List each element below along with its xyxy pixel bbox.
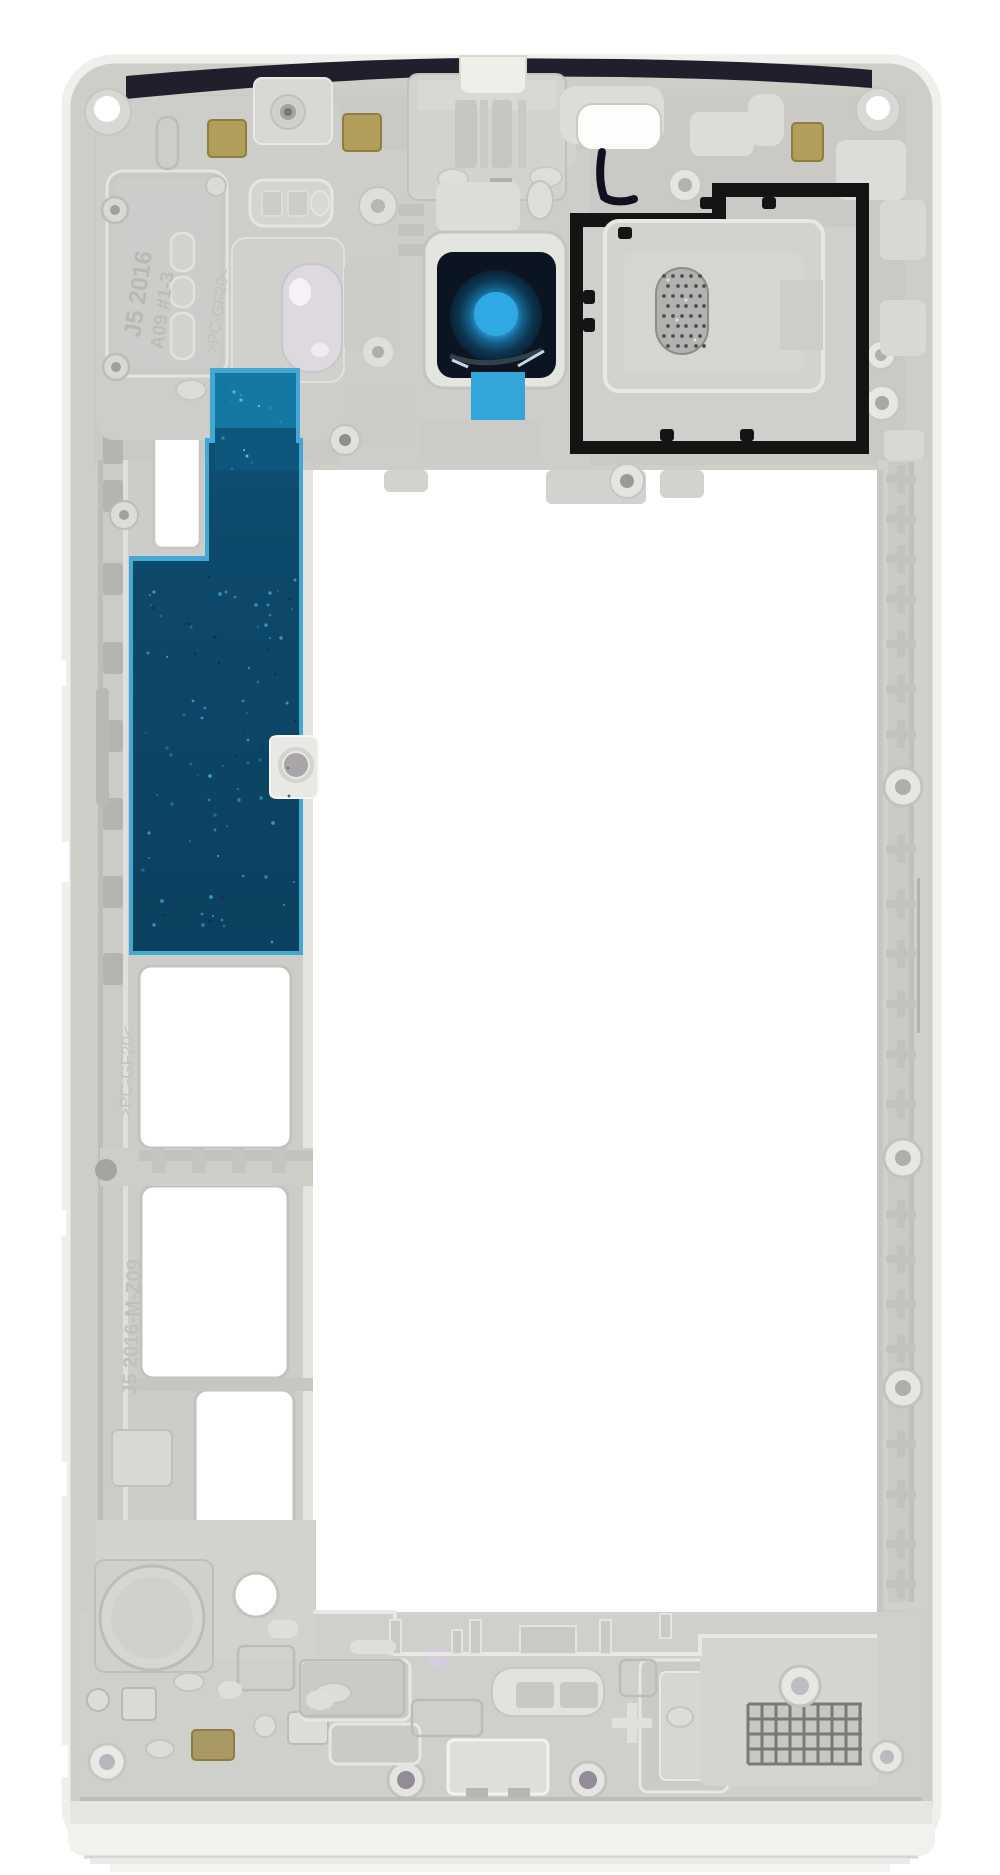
svg-text:>PC-GF20<: >PC-GF20< [116,1026,138,1118]
